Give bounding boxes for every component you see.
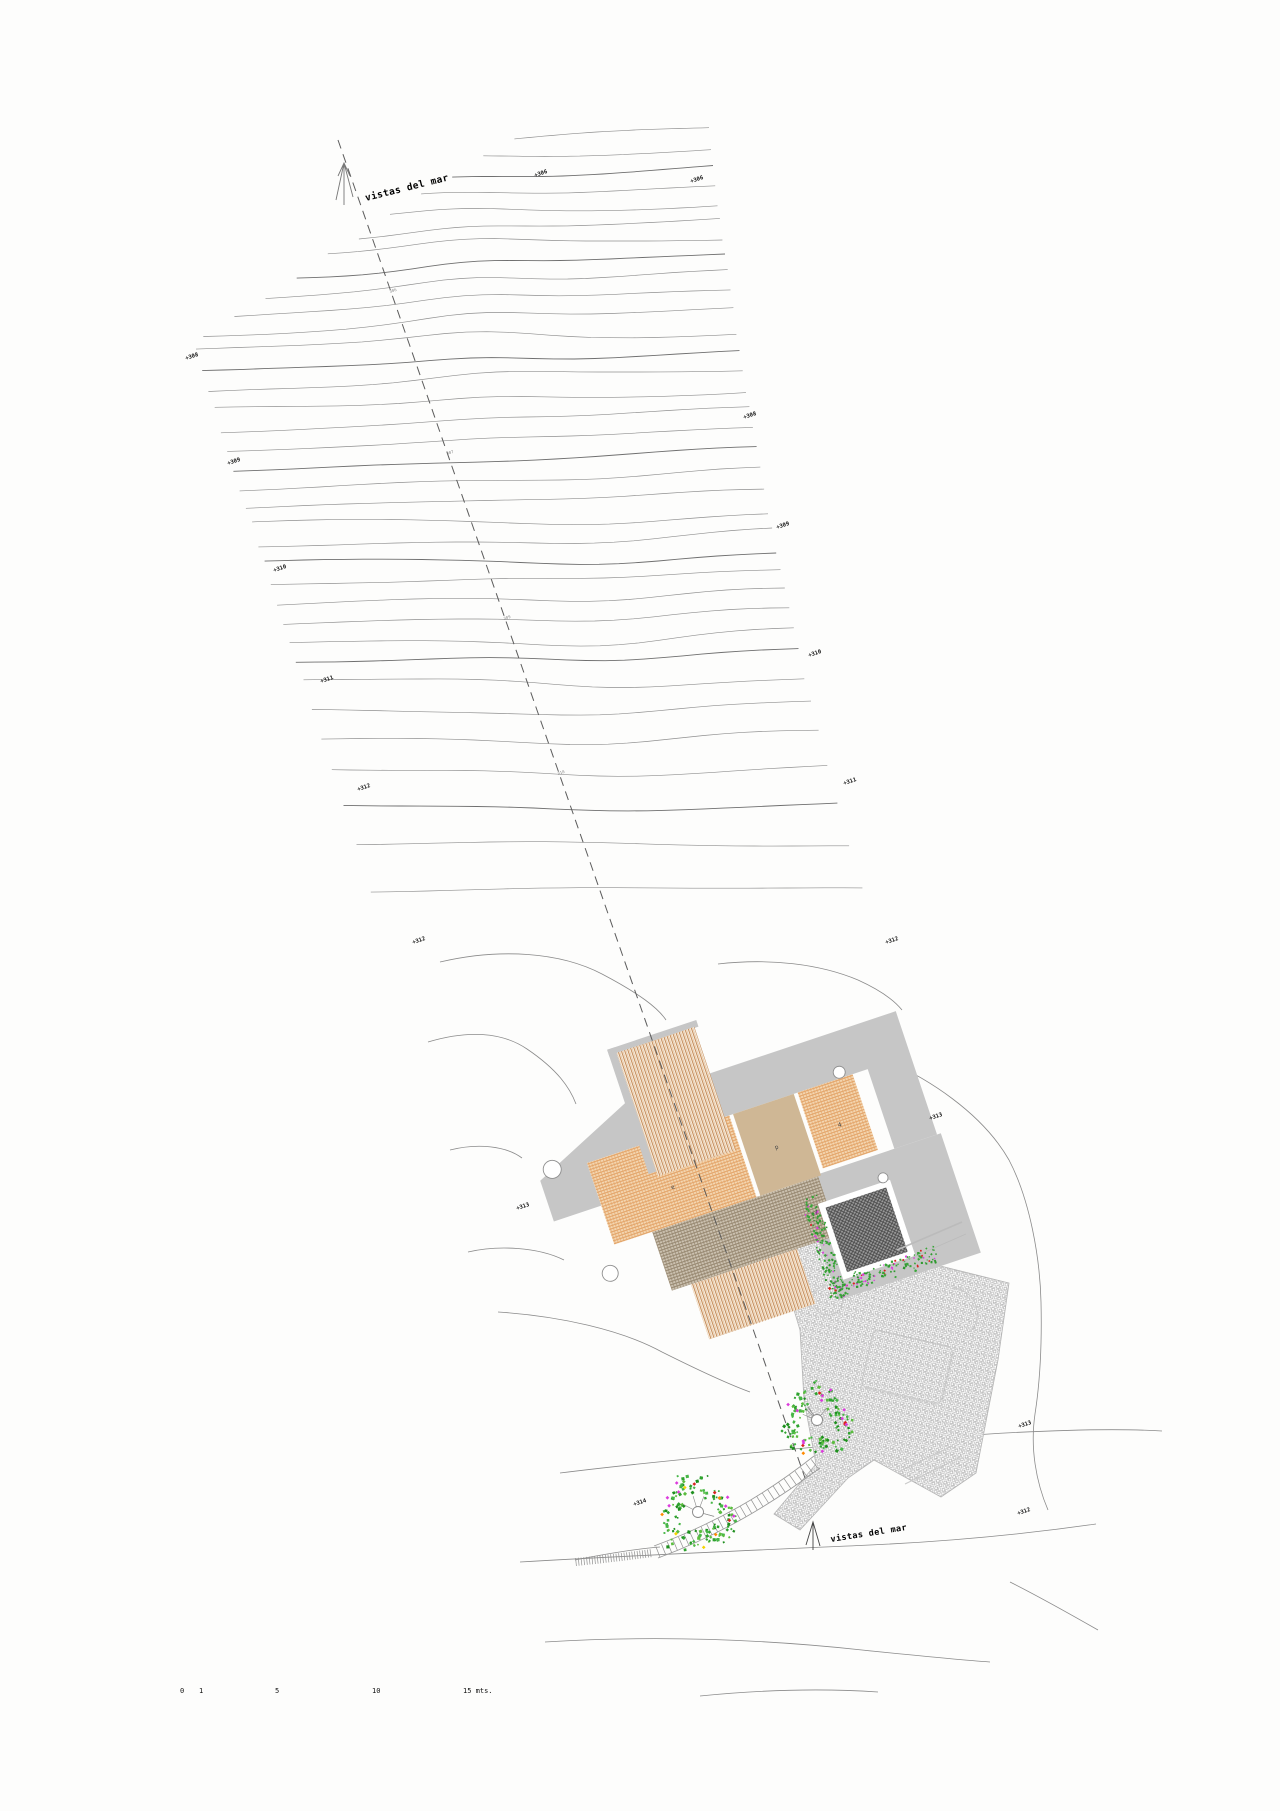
vegetation-speck	[935, 1253, 937, 1255]
contour-line	[304, 679, 805, 688]
path-hatch-tick	[629, 1552, 630, 1560]
contour-line	[440, 954, 666, 1020]
elevation-label: +312	[412, 936, 426, 946]
contour-line	[227, 427, 753, 451]
tree-foliage-speck	[723, 1541, 725, 1543]
tree-foliage-speck	[718, 1490, 720, 1492]
path-hatch-tick	[735, 1509, 741, 1519]
tree-foliage-speck	[847, 1427, 850, 1430]
tree-foliage-speck	[717, 1508, 720, 1511]
tree-foliage-speck	[672, 1491, 676, 1495]
vegetation-speck	[932, 1246, 934, 1248]
contour-line	[312, 701, 811, 715]
tree-flower	[702, 1546, 706, 1550]
view-label-top: vistas del mar	[364, 173, 450, 204]
tree-foliage-speck	[835, 1406, 838, 1409]
path-hatch-tick	[627, 1552, 628, 1560]
tree-foliage-speck	[703, 1492, 706, 1495]
vegetation-speck	[816, 1195, 817, 1196]
path-hatch-tick	[795, 1471, 802, 1481]
path-hatch-tick	[600, 1555, 601, 1563]
tree-foliage-speck	[663, 1522, 666, 1525]
vegetation-speck	[813, 1230, 815, 1232]
contour-line	[718, 962, 902, 1010]
tree-foliage-speck	[712, 1495, 715, 1498]
vegetation-speck	[836, 1285, 837, 1286]
vegetation-speck	[816, 1221, 818, 1223]
tree-foliage-speck	[728, 1507, 730, 1509]
section-elevation-mark: 310	[557, 769, 566, 776]
tree-foliage-speck	[681, 1536, 683, 1538]
tree-foliage-speck	[803, 1392, 805, 1394]
view-label-bottom: vistas del mar	[830, 1522, 908, 1545]
elevation-label: +309	[776, 521, 790, 531]
tree-flower	[713, 1491, 717, 1495]
contour-line	[283, 608, 789, 625]
tree-foliage-speck	[809, 1449, 813, 1453]
tree-foliage-speck	[707, 1475, 709, 1477]
vegetation-speck	[874, 1275, 876, 1277]
tree-foliage-speck	[671, 1539, 673, 1541]
tree-foliage-speck	[665, 1525, 668, 1528]
tree-foliage-speck	[700, 1489, 703, 1492]
tree-flower	[726, 1495, 730, 1499]
path-hatch-tick	[597, 1556, 598, 1564]
contour-line	[321, 730, 818, 744]
vegetation-speck	[925, 1263, 927, 1265]
vegetation-speck	[867, 1283, 869, 1285]
tree-foliage-speck	[786, 1435, 789, 1438]
tree-foliage-speck	[684, 1548, 687, 1551]
vegetation-speck	[853, 1285, 854, 1286]
vegetation-speck	[894, 1260, 896, 1262]
tree-foliage-speck	[676, 1475, 679, 1478]
tree-foliage-speck	[799, 1417, 801, 1419]
vegetation-speck	[861, 1281, 863, 1283]
elevation-label: +313	[1018, 1420, 1032, 1430]
tree-foliage-speck	[663, 1532, 665, 1534]
tree-foliage-speck	[784, 1431, 787, 1434]
vegetation-speck	[823, 1268, 825, 1270]
path-hatch-tick	[779, 1482, 786, 1492]
contour-line	[265, 553, 777, 564]
elevation-label: +310	[808, 649, 822, 659]
elevation-label: +308	[185, 352, 199, 362]
path-hatch-tick	[640, 1551, 641, 1559]
elevation-label: +312	[357, 783, 371, 793]
column-circle	[600, 1263, 620, 1283]
vegetation-speck	[894, 1270, 896, 1272]
tree-foliage-speck	[811, 1387, 814, 1390]
arrow-icon	[806, 1522, 820, 1550]
elevation-label: +312	[885, 936, 899, 946]
tree-flower	[724, 1504, 728, 1508]
tree-foliage-speck	[666, 1545, 669, 1548]
contour-line	[328, 239, 723, 254]
path-hatch-tick	[751, 1500, 757, 1510]
tree-foliage-speck	[838, 1412, 840, 1414]
tree-foliage-speck	[665, 1509, 668, 1512]
vegetation-speck	[840, 1276, 842, 1278]
tree-foliage-speck	[671, 1542, 674, 1545]
site-plan-sheet: ep47 vistas del mar vistas del mar +306+…	[0, 0, 1280, 1811]
tree-flower	[675, 1481, 679, 1485]
tree-foliage-speck	[716, 1538, 719, 1541]
vegetation-speck	[821, 1239, 824, 1242]
elevation-label: +313	[516, 1202, 530, 1212]
vegetation-speck	[808, 1210, 810, 1212]
tree-foliage-speck	[794, 1397, 796, 1399]
path-hatch-tick	[616, 1554, 617, 1562]
tree-foliage-speck	[727, 1526, 729, 1528]
elevation-label: +310	[273, 564, 287, 574]
path-hatch-tick	[642, 1550, 643, 1558]
elevation-label: +314	[633, 1498, 648, 1508]
scale-tick-label: 5	[275, 1687, 279, 1695]
path-hatch-tick	[637, 1551, 638, 1559]
tree	[660, 1475, 737, 1552]
vegetation-speck	[821, 1242, 823, 1244]
contour-line	[450, 1146, 522, 1158]
tree-foliage-speck	[826, 1399, 829, 1402]
path-hatch-tick	[762, 1493, 768, 1503]
vegetation-speck	[860, 1284, 863, 1287]
scale-tick-label: 1	[199, 1687, 203, 1695]
path-hatch-tick	[632, 1552, 633, 1560]
contour-line	[208, 371, 742, 392]
contour-line	[297, 254, 725, 278]
vegetation-speck	[819, 1220, 822, 1223]
path-hatch-tick	[768, 1489, 775, 1499]
tree-foliage-speck	[702, 1489, 705, 1492]
tree-foliage-speck	[681, 1477, 685, 1481]
vegetation-speck	[816, 1247, 818, 1249]
tree-foliage-speck	[723, 1508, 726, 1511]
tree-flower	[692, 1482, 696, 1486]
tree-foliage-speck	[672, 1504, 674, 1506]
path-hatch-tick	[603, 1555, 604, 1563]
scale-tick-label: 10	[372, 1687, 380, 1695]
tree-foliage-speck	[791, 1435, 794, 1438]
vegetation-speck	[869, 1272, 870, 1273]
vegetation-speck	[858, 1272, 861, 1275]
path-hatch-tick	[790, 1475, 797, 1485]
tree-foliage-speck	[796, 1435, 799, 1438]
arrow-icon	[336, 163, 353, 205]
path-hatch-tick	[613, 1554, 614, 1562]
section-line	[338, 140, 805, 1478]
contour-line	[266, 270, 728, 299]
contour-line	[240, 467, 761, 491]
tree-foliage-speck	[679, 1485, 682, 1488]
vegetation-speck	[815, 1239, 817, 1241]
elevation-label: +306	[534, 169, 549, 179]
path-hatch-tick	[624, 1553, 625, 1561]
tree-foliage-speck	[693, 1544, 695, 1546]
tree-foliage-speck	[782, 1424, 786, 1428]
contour-line	[271, 570, 781, 585]
tree-foliage-speck	[796, 1431, 798, 1433]
vegetation-speck	[816, 1217, 818, 1219]
tree-foliage-speck	[672, 1530, 674, 1532]
tree-foliage-speck	[699, 1529, 703, 1533]
tree-foliage-speck	[704, 1497, 707, 1500]
contour-line	[258, 528, 772, 547]
vegetation-speck	[836, 1292, 837, 1293]
contour-line	[221, 407, 750, 433]
tree-flower	[786, 1403, 790, 1407]
tree-foliage-speck	[678, 1523, 681, 1526]
contour-line	[421, 186, 715, 194]
tree-foliage-speck	[697, 1544, 699, 1546]
contour-line	[332, 765, 828, 776]
vegetation-speck	[827, 1274, 829, 1276]
tree-foliage-speck	[780, 1429, 783, 1432]
contour-line	[359, 218, 720, 239]
contour-line	[520, 1524, 1096, 1562]
vegetation-speck	[867, 1279, 869, 1281]
tree-foliage-speck	[691, 1491, 695, 1495]
path-hatch-tick	[608, 1555, 609, 1563]
vegetation-speck	[824, 1260, 826, 1262]
vegetation-speck	[921, 1262, 923, 1264]
vegetation-speck	[883, 1276, 885, 1278]
tree-foliage-speck	[730, 1506, 733, 1509]
vegetation-speck	[931, 1261, 933, 1263]
vegetation-speck	[810, 1204, 812, 1206]
elevation-label: +313	[929, 1112, 943, 1122]
tree-flower	[801, 1451, 805, 1455]
contour-line	[246, 489, 764, 508]
tree-foliage-speck	[695, 1479, 699, 1483]
tree-foliage-speck	[675, 1495, 678, 1498]
vegetation-speck	[833, 1285, 835, 1287]
vegetation-speck	[896, 1265, 898, 1267]
vegetation-speck	[827, 1262, 828, 1263]
vegetation-speck	[856, 1274, 858, 1276]
tree-foliage-speck	[791, 1412, 795, 1416]
vegetation-speck	[891, 1261, 893, 1263]
vegetation-speck	[905, 1255, 907, 1257]
tree-foliage-speck	[716, 1497, 718, 1499]
contour-line	[545, 1639, 990, 1662]
tree-foliage-speck	[672, 1497, 675, 1500]
scale-bar: 0151015 mts.	[180, 1687, 493, 1695]
vegetation-speck	[826, 1227, 828, 1229]
vegetation-speck	[885, 1264, 887, 1266]
tree-foliage-speck	[667, 1519, 670, 1522]
contour-line	[700, 1690, 878, 1696]
tree-foliage-speck	[699, 1476, 703, 1480]
vegetation-speck	[887, 1265, 890, 1268]
elevation-label: +311	[843, 777, 858, 787]
contour-line	[215, 393, 746, 408]
contour-line	[514, 128, 709, 139]
contour-line	[428, 1034, 576, 1104]
contour-line	[277, 588, 785, 605]
elevation-label: +309	[227, 457, 241, 467]
vegetation-speck	[852, 1279, 853, 1280]
path-hatch-tick	[645, 1550, 646, 1558]
tree-foliage-speck	[720, 1504, 723, 1507]
tree-foliage-speck	[673, 1528, 675, 1530]
path-hatch-tick	[595, 1556, 596, 1564]
tree-foliage-speck	[829, 1398, 832, 1401]
tree-foliage-speck	[808, 1437, 810, 1439]
elevation-label: +312	[1017, 1507, 1031, 1517]
tree-foliage-speck	[792, 1432, 794, 1434]
path-hatch-tick	[773, 1486, 780, 1496]
tree-foliage-speck	[683, 1492, 687, 1496]
site-plan-drawing: ep47 vistas del mar vistas del mar +306+…	[0, 0, 1280, 1811]
contour-line	[483, 150, 711, 157]
tree-foliage-speck	[689, 1484, 693, 1488]
path-hatch-tick	[619, 1553, 620, 1561]
contour-lines-upper	[196, 128, 862, 892]
path-hatch-tick	[621, 1553, 622, 1561]
scale-tick-label: 15 mts.	[463, 1687, 493, 1695]
section-elevation-mark: 307	[446, 449, 455, 456]
contour-line	[390, 206, 718, 215]
elevation-label: +308	[743, 411, 757, 421]
path-hatch-tick	[662, 1544, 667, 1555]
vegetation-speck	[833, 1265, 835, 1267]
elevation-label: +311	[320, 675, 335, 685]
contour-line	[290, 628, 794, 646]
tree-foliage-speck	[705, 1538, 708, 1541]
vegetation-speck	[816, 1227, 819, 1230]
contour-line	[202, 351, 739, 371]
path-hatch-tick	[647, 1550, 648, 1558]
vegetation-speck	[822, 1222, 823, 1223]
path-hatch-tick	[656, 1546, 660, 1557]
vegetation-speck	[821, 1229, 824, 1232]
path-hatch-tick	[634, 1551, 635, 1559]
tree-foliage-speck	[685, 1475, 689, 1479]
contour-line	[196, 332, 736, 349]
vegetation-speck	[830, 1292, 832, 1294]
contour-line	[452, 166, 713, 178]
tree-foliage-speck	[730, 1528, 733, 1531]
tree-foliage-speck	[808, 1444, 811, 1447]
vegetation-speck	[858, 1279, 860, 1281]
contour-line	[1010, 1582, 1098, 1630]
tree-foliage-speck	[732, 1530, 735, 1533]
path-hatch-tick	[757, 1496, 763, 1506]
vegetation-speck	[805, 1202, 807, 1204]
tree-foliage-speck	[705, 1492, 708, 1495]
tree-trunk	[812, 1415, 823, 1426]
path-hatch-tick	[784, 1479, 791, 1489]
vegetation-speck	[851, 1285, 852, 1286]
tree-flower	[667, 1504, 671, 1508]
tree-foliage-speck	[796, 1392, 800, 1396]
tree-foliage-speck	[718, 1510, 722, 1514]
tree-foliage-speck	[713, 1538, 716, 1541]
tree-foliage-speck	[693, 1486, 696, 1489]
elevation-label: +306	[690, 175, 705, 185]
vegetation-speck	[856, 1286, 858, 1288]
tree-foliage-speck	[796, 1424, 800, 1428]
vegetation-speck	[819, 1258, 821, 1260]
vegetation-speck	[909, 1265, 911, 1267]
path-hatch-tick	[746, 1503, 752, 1513]
tree-flower	[660, 1513, 664, 1517]
vegetation-speck	[920, 1250, 922, 1252]
tree-foliage-speck	[725, 1528, 729, 1532]
tree-foliage-speck	[728, 1514, 731, 1517]
path-hatch-tick	[650, 1549, 651, 1557]
tree-foliage-speck	[711, 1502, 713, 1504]
tree-foliage-speck	[799, 1409, 802, 1412]
tree-trunk	[693, 1507, 704, 1518]
tree-foliage-speck	[848, 1432, 851, 1435]
vegetation-speck	[848, 1288, 850, 1290]
contour-line	[357, 842, 850, 846]
path-hatch-tick	[605, 1555, 606, 1563]
scale-tick-label: 0	[180, 1687, 184, 1695]
contour-line	[468, 1248, 564, 1260]
tree-foliage-speck	[801, 1410, 804, 1413]
vegetation-speck	[830, 1252, 832, 1254]
contour-line	[233, 447, 756, 472]
vegetation-speck	[833, 1276, 835, 1278]
vegetation-speck	[913, 1267, 914, 1268]
vegetation-speck	[806, 1198, 808, 1200]
path-hatch-tick	[684, 1535, 689, 1546]
vegetation-speck	[838, 1286, 840, 1288]
contour-line	[371, 888, 863, 892]
path-hatch-tick	[740, 1506, 746, 1516]
vegetation-speck	[834, 1289, 836, 1291]
vegetation-speck	[869, 1274, 870, 1275]
path-hatch-tick	[592, 1556, 593, 1564]
tree-foliage-speck	[717, 1525, 720, 1528]
tree-foliage-speck	[728, 1536, 731, 1539]
vegetation-speck	[842, 1281, 844, 1283]
contour-line	[296, 649, 799, 663]
contour-line	[252, 514, 768, 525]
path-hatch-tick	[611, 1554, 612, 1562]
contour-line	[344, 803, 838, 811]
tree-foliage-speck	[837, 1429, 839, 1431]
tree-foliage-speck	[829, 1413, 832, 1416]
vegetation-speck	[890, 1271, 892, 1273]
tree-foliage-speck	[851, 1419, 854, 1422]
tree-flower	[666, 1496, 670, 1500]
section-elevation-mark: 306	[389, 287, 398, 294]
section-elevation-mark: 309	[503, 614, 512, 621]
